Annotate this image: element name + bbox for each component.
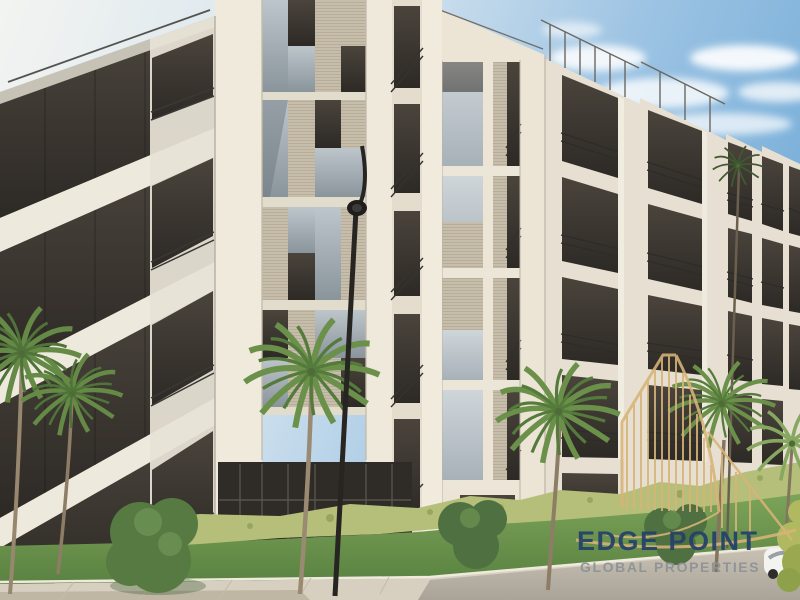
balcony-fin — [618, 96, 624, 460]
scene-svg — [0, 0, 800, 600]
mosaic-facade-sunlit — [442, 62, 521, 540]
property-render-image: EDGE POINT GLOBAL PROPERTIES — [0, 0, 800, 600]
